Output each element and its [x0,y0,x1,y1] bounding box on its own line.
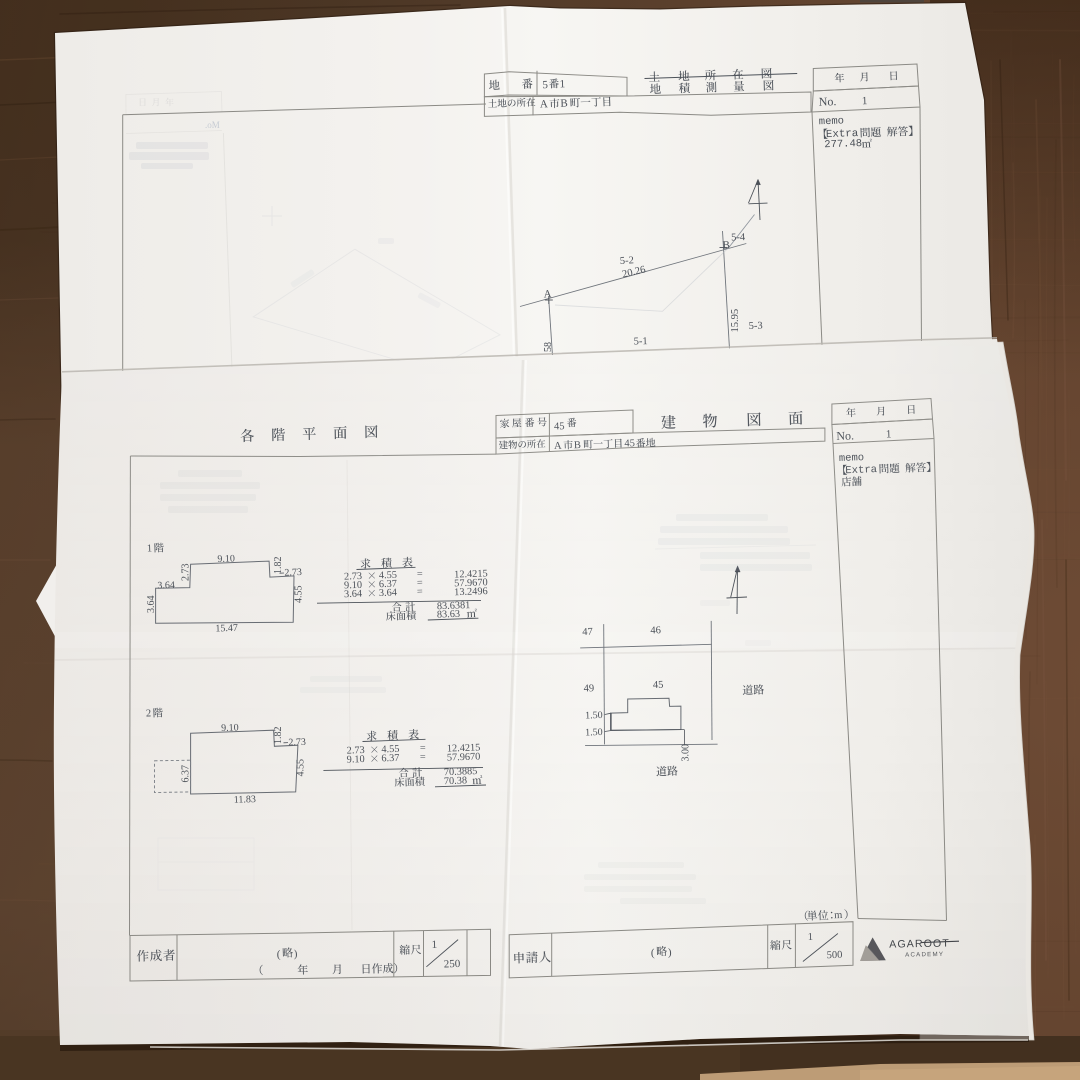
svg-text:B: B [722,239,730,251]
svg-text:5-2: 5-2 [620,255,635,267]
svg-text:memo: memo [819,115,845,128]
svg-text:5-3: 5-3 [749,321,763,332]
svg-text:A: A [543,288,551,300]
svg-text:5-1: 5-1 [634,336,648,347]
svg-text:277.48: 277.48 [824,138,862,151]
svg-text:1: 1 [862,95,868,107]
svg-text:No.: No. [819,94,837,109]
svg-text:B: B [560,98,568,110]
svg-text:1: 1 [559,78,565,90]
svg-text:5-4: 5-4 [731,232,746,244]
svg-text:5: 5 [542,79,548,91]
svg-text:15.95: 15.95 [730,309,741,333]
svg-text:.oM: .oM [205,120,220,130]
svg-text:A: A [540,98,548,110]
svg-text:58: 58 [543,342,554,352]
